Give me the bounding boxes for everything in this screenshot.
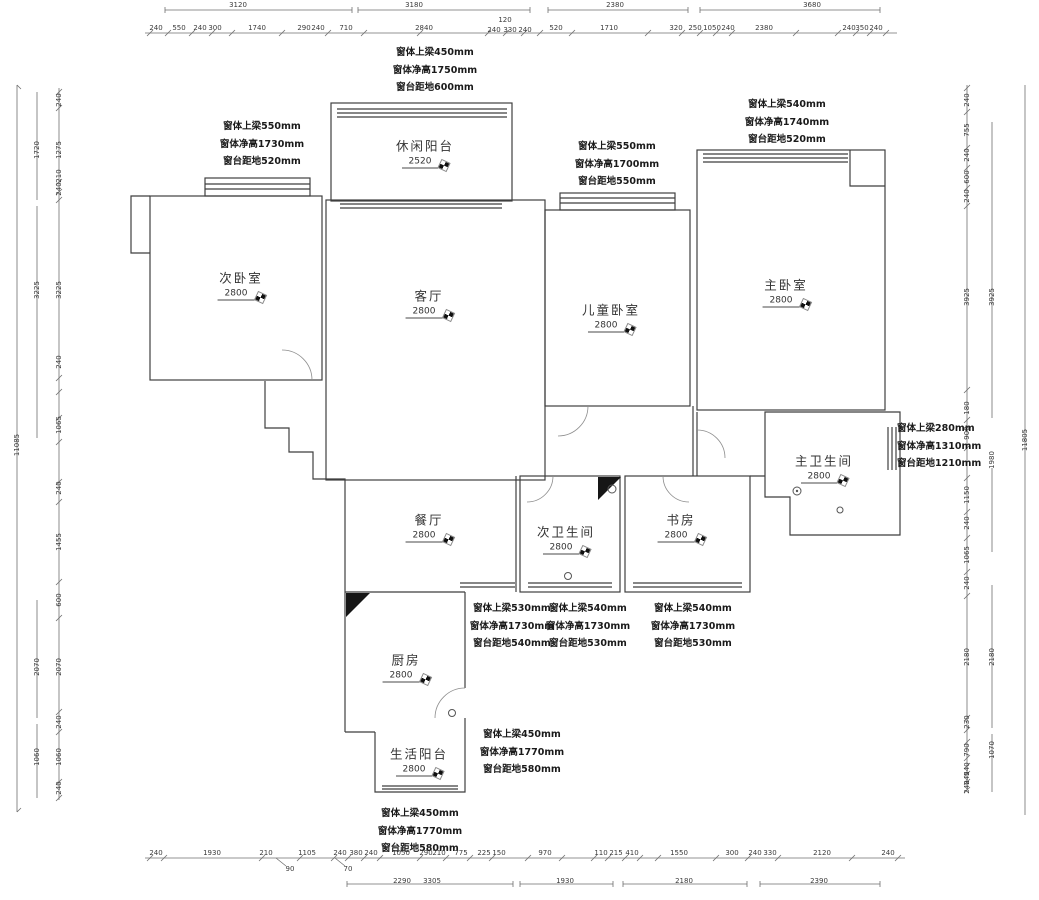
floor-plan-drawing	[0, 0, 1039, 900]
fixture-icon	[565, 573, 572, 580]
corner-flag-icon	[598, 477, 621, 500]
fixture-icon	[837, 507, 843, 513]
fixture-icon	[608, 485, 616, 493]
door-swing-arcs	[282, 350, 725, 718]
floor-plan-canvas: 休闲阳台2520次卧室2800客厅2800儿童卧室2800主卧室2800主卫生间…	[0, 0, 1039, 900]
dimension-lines	[17, 7, 1025, 887]
walls	[131, 103, 900, 792]
fixture-icon	[449, 710, 456, 717]
fixture-icon	[796, 490, 798, 492]
corner-flag-icon	[346, 593, 370, 617]
plan-symbols	[282, 350, 843, 718]
